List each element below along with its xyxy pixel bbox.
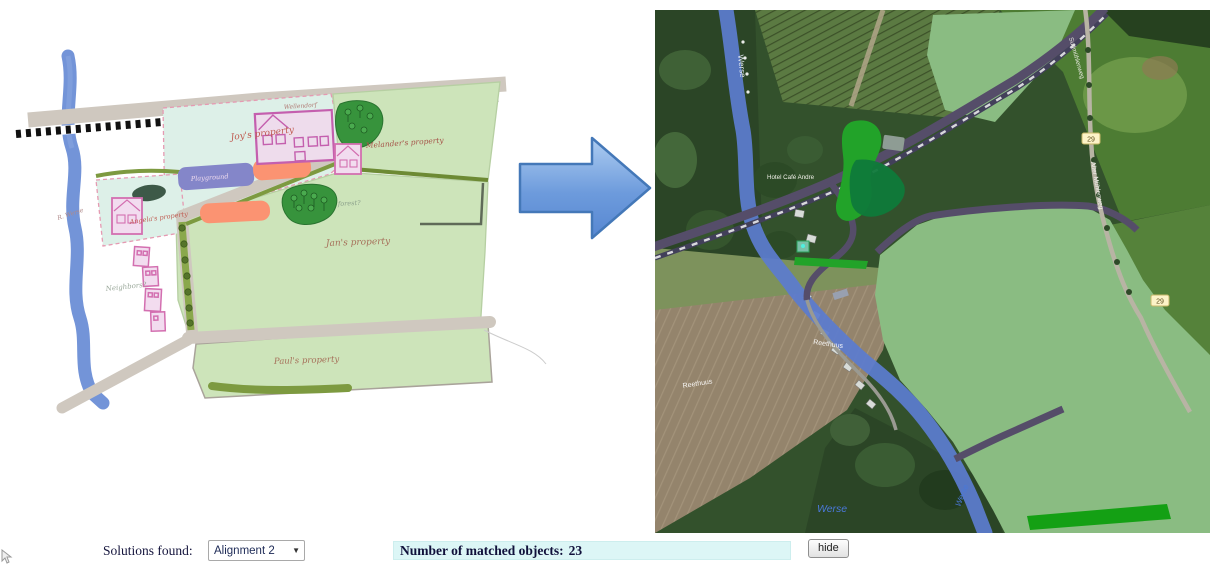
alignment-dropdown[interactable]: Alignment 2 ▼ — [208, 540, 305, 561]
house-melander — [335, 144, 361, 174]
matched-objects-value: 23 — [569, 543, 583, 559]
map-label-cafe: Hotel Café Andre — [767, 174, 815, 181]
hide-button[interactable]: hide — [808, 539, 849, 558]
pencil-line — [484, 330, 546, 364]
route-badge-2: 29 — [1156, 299, 1164, 306]
arrow-shape — [520, 138, 650, 238]
alignment-dropdown-value: Alignment 2 — [214, 545, 275, 557]
route-badge-1: 29 — [1087, 137, 1095, 144]
label-neighbors: Neighbors? — [104, 281, 147, 293]
solutions-found-label: Solutions found: — [103, 543, 193, 559]
aerial-map[interactable]: 29 29 Werse Hotel Café Andre Reethuus Re… — [655, 10, 1210, 533]
cursor-artifact — [1, 549, 13, 565]
matched-objects-field: Number of matched objects: 23 — [393, 541, 791, 560]
orange-patch-2 — [200, 200, 271, 224]
chevron-down-icon: ▼ — [292, 546, 300, 555]
matched-objects-label: Number of matched objects: — [400, 543, 564, 559]
map-label-river-bottom: Werse — [817, 503, 847, 515]
sketch-map: Joy's property Wellendorf Playground Mel… — [6, 8, 551, 438]
transform-arrow — [512, 130, 658, 246]
app-window: Joy's property Wellendorf Playground Mel… — [0, 0, 1210, 572]
label-forest: forest? — [337, 199, 362, 208]
